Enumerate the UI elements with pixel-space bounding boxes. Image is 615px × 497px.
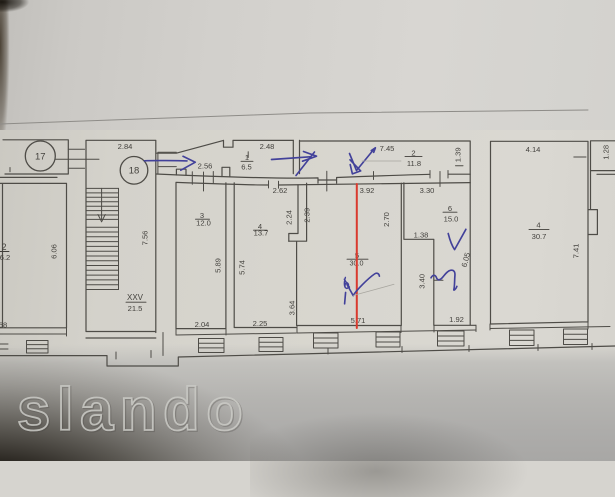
- svg-text:7.56: 7.56: [141, 231, 150, 246]
- svg-text:1.92: 1.92: [449, 315, 464, 324]
- svg-text:6: 6: [448, 204, 452, 213]
- svg-text:2.24: 2.24: [285, 210, 294, 225]
- svg-text:1: 1: [245, 153, 249, 162]
- svg-text:3.64: 3.64: [288, 301, 297, 316]
- svg-text:3.40: 3.40: [418, 274, 427, 289]
- svg-text:6.06: 6.06: [50, 244, 59, 259]
- svg-text:17: 17: [35, 151, 46, 162]
- svg-text:5.89: 5.89: [214, 258, 223, 273]
- svg-text:2.39: 2.39: [302, 208, 311, 223]
- svg-text:XXV: XXV: [127, 293, 144, 302]
- svg-text:3.92: 3.92: [360, 186, 375, 195]
- svg-text:2.56: 2.56: [198, 162, 213, 171]
- svg-text:2: 2: [411, 148, 415, 157]
- svg-text:11.8: 11.8: [407, 159, 421, 168]
- svg-text:15.0: 15.0: [444, 215, 459, 224]
- svg-text:4: 4: [536, 221, 540, 230]
- svg-text:6.5: 6.5: [241, 163, 252, 172]
- svg-text:68: 68: [0, 321, 7, 330]
- svg-text:2.84: 2.84: [118, 142, 133, 151]
- svg-text:5.74: 5.74: [238, 260, 247, 275]
- svg-text:3.30: 3.30: [420, 186, 435, 195]
- svg-text:6.2: 6.2: [0, 253, 10, 262]
- svg-text:1.28: 1.28: [602, 145, 611, 160]
- svg-text:12.0: 12.0: [196, 219, 211, 228]
- svg-text:1.38: 1.38: [414, 231, 429, 240]
- svg-text:2.25: 2.25: [253, 319, 268, 328]
- svg-text:2.70: 2.70: [382, 212, 391, 227]
- svg-text:18: 18: [129, 166, 140, 177]
- svg-text:2.04: 2.04: [195, 320, 210, 329]
- svg-text:13.7: 13.7: [254, 229, 269, 238]
- svg-text:30.7: 30.7: [532, 232, 547, 241]
- svg-text:2.62: 2.62: [273, 186, 288, 195]
- svg-text:7.45: 7.45: [380, 144, 395, 153]
- svg-text:2.48: 2.48: [260, 142, 275, 151]
- svg-text:5.71: 5.71: [351, 316, 366, 325]
- svg-text:2: 2: [1, 242, 6, 252]
- svg-text:1.39: 1.39: [453, 147, 462, 162]
- svg-text:21.5: 21.5: [128, 304, 143, 313]
- svg-text:4.14: 4.14: [526, 145, 541, 154]
- svg-text:7.41: 7.41: [572, 244, 581, 259]
